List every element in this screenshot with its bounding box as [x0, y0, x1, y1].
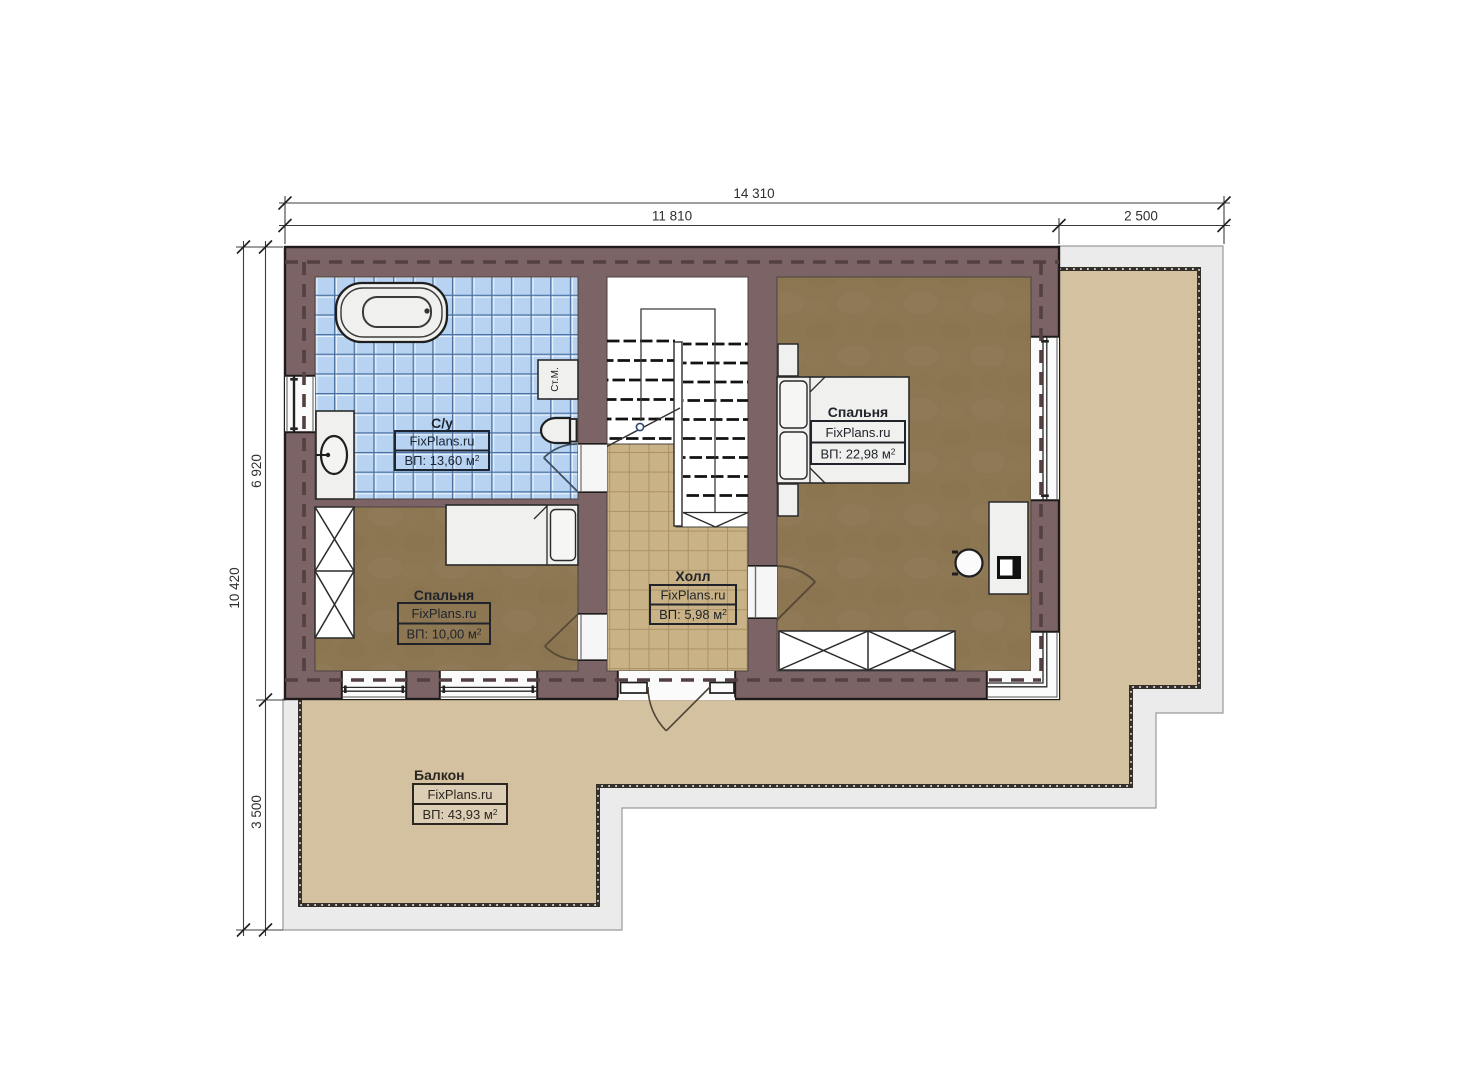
- svg-text:FixPlans.ru: FixPlans.ru: [825, 425, 890, 440]
- svg-text:2 500: 2 500: [1124, 209, 1158, 224]
- svg-text:10 420: 10 420: [227, 567, 242, 608]
- svg-text:FixPlans.ru: FixPlans.ru: [409, 434, 474, 449]
- svg-text:11 810: 11 810: [652, 209, 692, 224]
- svg-text:ВП: 10,00 м2: ВП: 10,00 м2: [406, 627, 481, 642]
- svg-text:FixPlans.ru: FixPlans.ru: [411, 606, 476, 621]
- svg-text:ВП: 22,98 м2: ВП: 22,98 м2: [820, 447, 895, 462]
- svg-text:Ст.М.: Ст.М.: [550, 367, 561, 392]
- svg-text:Холл: Холл: [675, 568, 710, 584]
- svg-text:ВП: 43,93 м2: ВП: 43,93 м2: [422, 807, 497, 822]
- svg-text:ВП: 5,98 м2: ВП: 5,98 м2: [659, 607, 727, 622]
- svg-text:Балкон: Балкон: [414, 767, 465, 783]
- svg-text:Спальня: Спальня: [414, 587, 474, 603]
- svg-text:Спальня: Спальня: [828, 404, 888, 420]
- svg-text:6 920: 6 920: [249, 454, 264, 488]
- svg-text:ВП: 13,60 м2: ВП: 13,60 м2: [404, 453, 479, 468]
- svg-text:3 500: 3 500: [249, 795, 264, 829]
- svg-text:С/у: С/у: [431, 415, 453, 431]
- svg-text:FixPlans.ru: FixPlans.ru: [427, 787, 492, 802]
- svg-text:14 310: 14 310: [733, 186, 774, 201]
- svg-text:FixPlans.ru: FixPlans.ru: [660, 588, 725, 603]
